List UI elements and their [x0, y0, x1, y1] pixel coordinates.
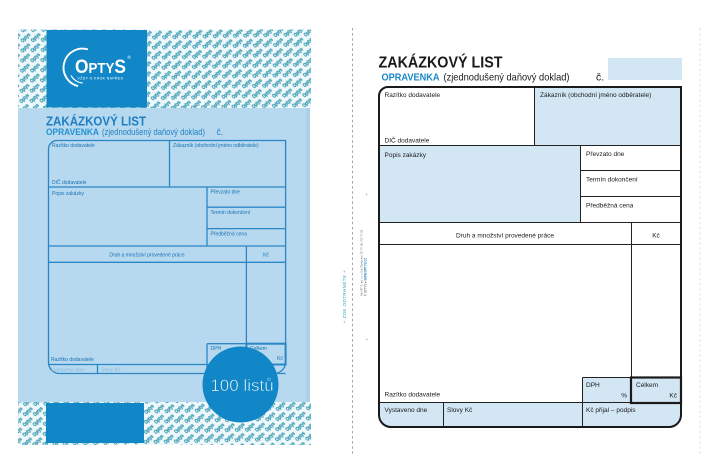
svg-text:Termín dokončení: Termín dokončení	[586, 177, 638, 184]
svg-text:DIČ dodavatele: DIČ dodavatele	[52, 179, 87, 186]
svg-text:+ ZDE ODTRHNĚTE +: + ZDE ODTRHNĚTE +	[342, 270, 347, 323]
svg-text:Druh a množství provedené prác: Druh a množství provedené práce	[109, 253, 185, 259]
svg-text:VŽDY O KROK NAPŘED: VŽDY O KROK NAPŘED	[78, 76, 124, 81]
svg-text:Kč: Kč	[277, 356, 283, 362]
svg-text:Slovy Kč: Slovy Kč	[101, 367, 121, 373]
svg-text:(zjednodušený daňový doklad): (zjednodušený daňový doklad)	[102, 127, 205, 137]
svg-text:Předběžná cena: Předběžná cena	[211, 232, 248, 238]
svg-text:+: +	[366, 337, 369, 342]
svg-text:100 listů: 100 listů	[210, 376, 273, 395]
svg-text:č.: č.	[596, 71, 604, 83]
svg-text:Kč: Kč	[669, 393, 677, 400]
svg-text:ZAKÁZKOVÝ LIST: ZAKÁZKOVÝ LIST	[379, 52, 503, 71]
svg-text:Zákazník (obchodní jméno odběr: Zákazník (obchodní jméno odběratele)	[540, 92, 651, 99]
svg-text:Předběžná cena: Předběžná cena	[586, 203, 634, 210]
svg-text:(zjednodušený daňový doklad): (zjednodušený daňový doklad)	[444, 71, 570, 83]
svg-text:Kč přijal – podpis: Kč přijal – podpis	[586, 407, 636, 414]
svg-text:+: +	[365, 192, 368, 197]
svg-text:č.: č.	[217, 127, 224, 137]
svg-text:Zákazník (obchodní jméno odběr: Zákazník (obchodní jméno odběratele)	[173, 143, 259, 149]
svg-text:Popis zakázky: Popis zakázky	[385, 152, 427, 159]
svg-text:Popis zakázky: Popis zakázky	[52, 191, 84, 197]
svg-text:Celkem: Celkem	[636, 382, 658, 389]
svg-text:Razítko dodavatele: Razítko dodavatele	[51, 357, 94, 363]
svg-text:Termín dokončení: Termín dokončení	[211, 210, 251, 216]
svg-text:OPRAVENKA: OPRAVENKA	[382, 71, 440, 83]
svg-text:Převzato dne: Převzato dne	[586, 151, 625, 158]
svg-text:Razítko dodavatele: Razítko dodavatele	[385, 392, 441, 399]
svg-text:ZAKÁZKOVÝ LIST: ZAKÁZKOVÝ LIST	[46, 113, 146, 128]
svg-text:DPH: DPH	[586, 382, 600, 389]
svg-text:Slovy Kč: Slovy Kč	[447, 407, 473, 414]
svg-text:Druh a množství provedené prác: Druh a množství provedené práce	[456, 233, 554, 240]
svg-text:Převzato dne: Převzato dne	[211, 190, 241, 196]
svg-text:Kč: Kč	[652, 233, 660, 240]
svg-text:OPRAVENKA: OPRAVENKA	[46, 127, 99, 137]
svg-text:Razítko dodavatele: Razítko dodavatele	[52, 143, 95, 149]
svg-text:Razítko dodavatele: Razítko dodavatele	[385, 92, 441, 99]
svg-text:Kč: Kč	[263, 253, 269, 259]
svg-text:OPTYS: OPTYS	[75, 57, 126, 78]
svg-text:%: %	[621, 393, 627, 400]
svg-text:Vystaveno dne: Vystaveno dne	[51, 367, 84, 373]
svg-text:© OPTYS ● WWW.OPTYS.CZ: © OPTYS ● WWW.OPTYS.CZ	[363, 258, 367, 296]
svg-text:DPH: DPH	[211, 346, 222, 352]
svg-text:Vystaveno dne: Vystaveno dne	[385, 407, 428, 414]
svg-text:DIČ dodavatele: DIČ dodavatele	[385, 136, 430, 145]
